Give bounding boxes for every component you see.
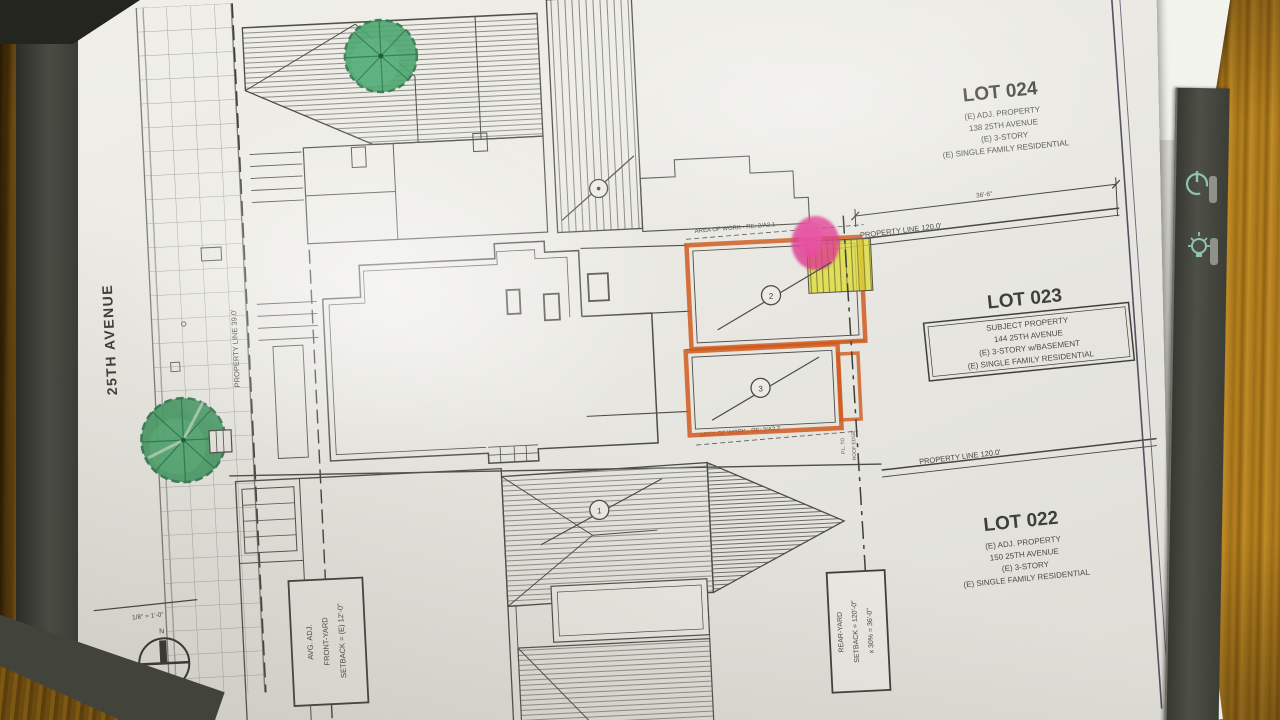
rear-setback-box: REAR-YARD SETBACK = 120'-0" x 30% = 36'-… xyxy=(827,570,891,693)
south-property-line-label: PROPERTY LINE 120.0' xyxy=(919,447,1002,466)
device-bezel-left xyxy=(16,0,78,720)
keynote-top-roof xyxy=(589,179,608,198)
svg-text:LOT 022: LOT 022 xyxy=(983,508,1060,536)
keynote-3: 3 xyxy=(709,357,822,420)
svg-text:AVG. ADJ.: AVG. ADJ. xyxy=(305,624,316,660)
lot022-label-block: LOT 022 (E) ADJ. PROPERTY 150 25TH AVENU… xyxy=(957,505,1091,590)
site-plan-drawing: 25TH AVENUE PROPERTY LINE 39.0' xyxy=(46,0,1181,720)
subject-building xyxy=(254,226,870,474)
lot023-label-block: LOT 023 SUBJECT PROPERTY 144 25TH AVENUE… xyxy=(921,279,1134,381)
site-plan-photo: 25TH AVENUE PROPERTY LINE 39.0' xyxy=(0,0,1280,720)
planter-box xyxy=(209,430,232,453)
lot024-building xyxy=(242,0,810,250)
sidewalk xyxy=(136,3,266,697)
svg-text:LOT 024: LOT 024 xyxy=(962,78,1039,107)
power-icon xyxy=(1182,168,1212,203)
device-button xyxy=(1209,176,1217,203)
area-of-work-1-label: AREA OF WORK - RE: 2/A2.1 xyxy=(695,222,777,235)
device-button xyxy=(1210,238,1218,265)
street-label: 25TH AVENUE xyxy=(99,284,120,396)
svg-text:N: N xyxy=(159,628,164,635)
plan-sheet: 25TH AVENUE PROPERTY LINE 39.0' xyxy=(54,0,1171,720)
lot024-label-block: LOT 024 (E) ADJ. PROPERTY 138 25TH AVENU… xyxy=(936,75,1070,160)
north-property-line-label: PROPERTY LINE 120.0' xyxy=(859,221,942,240)
front-setback-box: AVG. ADJ. FRONT-YARD SETBACK = (E) 12'-0… xyxy=(288,578,368,706)
side-note-a: P.L. TO xyxy=(840,437,847,454)
top-dimension-label: 36'-6" xyxy=(976,191,994,200)
svg-text:LOT 023: LOT 023 xyxy=(986,285,1063,313)
scale-label: 1/8" = 1'-0" xyxy=(132,611,165,621)
